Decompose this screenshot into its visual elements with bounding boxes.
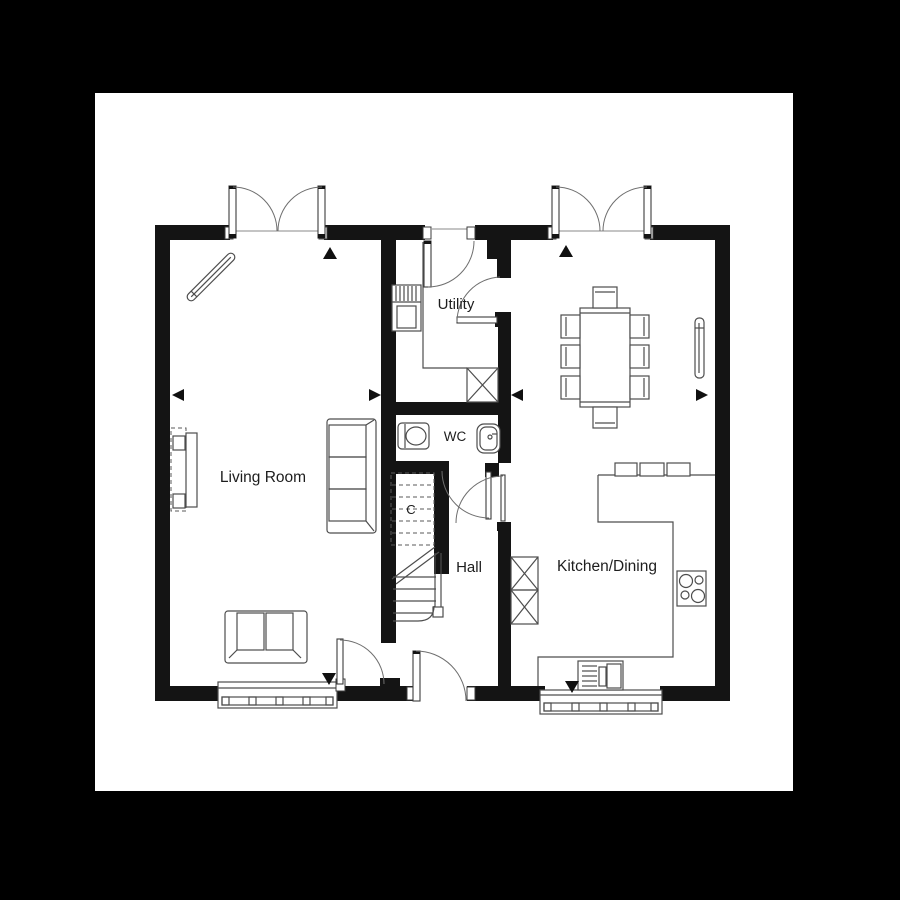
wall-cabinets xyxy=(615,463,690,476)
toilet xyxy=(398,423,429,449)
window-kitchen xyxy=(540,690,662,714)
floor-plan-canvas: Living Room Utility WC C Hall Kitchen/Di… xyxy=(0,0,900,900)
cupboard-label: C xyxy=(406,502,415,517)
hob xyxy=(677,571,706,606)
washing-machine xyxy=(392,285,421,331)
sink-drainer xyxy=(578,661,623,690)
basin xyxy=(477,424,500,453)
dining-table xyxy=(580,308,630,407)
sofa-2-seat xyxy=(225,611,307,663)
living-room-label: Living Room xyxy=(220,469,306,486)
radiator-vertical xyxy=(695,318,704,378)
hall-label: Hall xyxy=(456,559,482,576)
stair-newel-post xyxy=(433,607,443,617)
floor-plan-drawing: Living Room Utility WC C Hall Kitchen/Di… xyxy=(0,0,900,900)
kitchen-dining-label: Kitchen/Dining xyxy=(557,558,657,575)
sofa-3-seat xyxy=(327,419,376,533)
utility-label: Utility xyxy=(438,296,475,313)
wc-label: WC xyxy=(444,429,467,444)
window-living-room xyxy=(218,682,337,708)
